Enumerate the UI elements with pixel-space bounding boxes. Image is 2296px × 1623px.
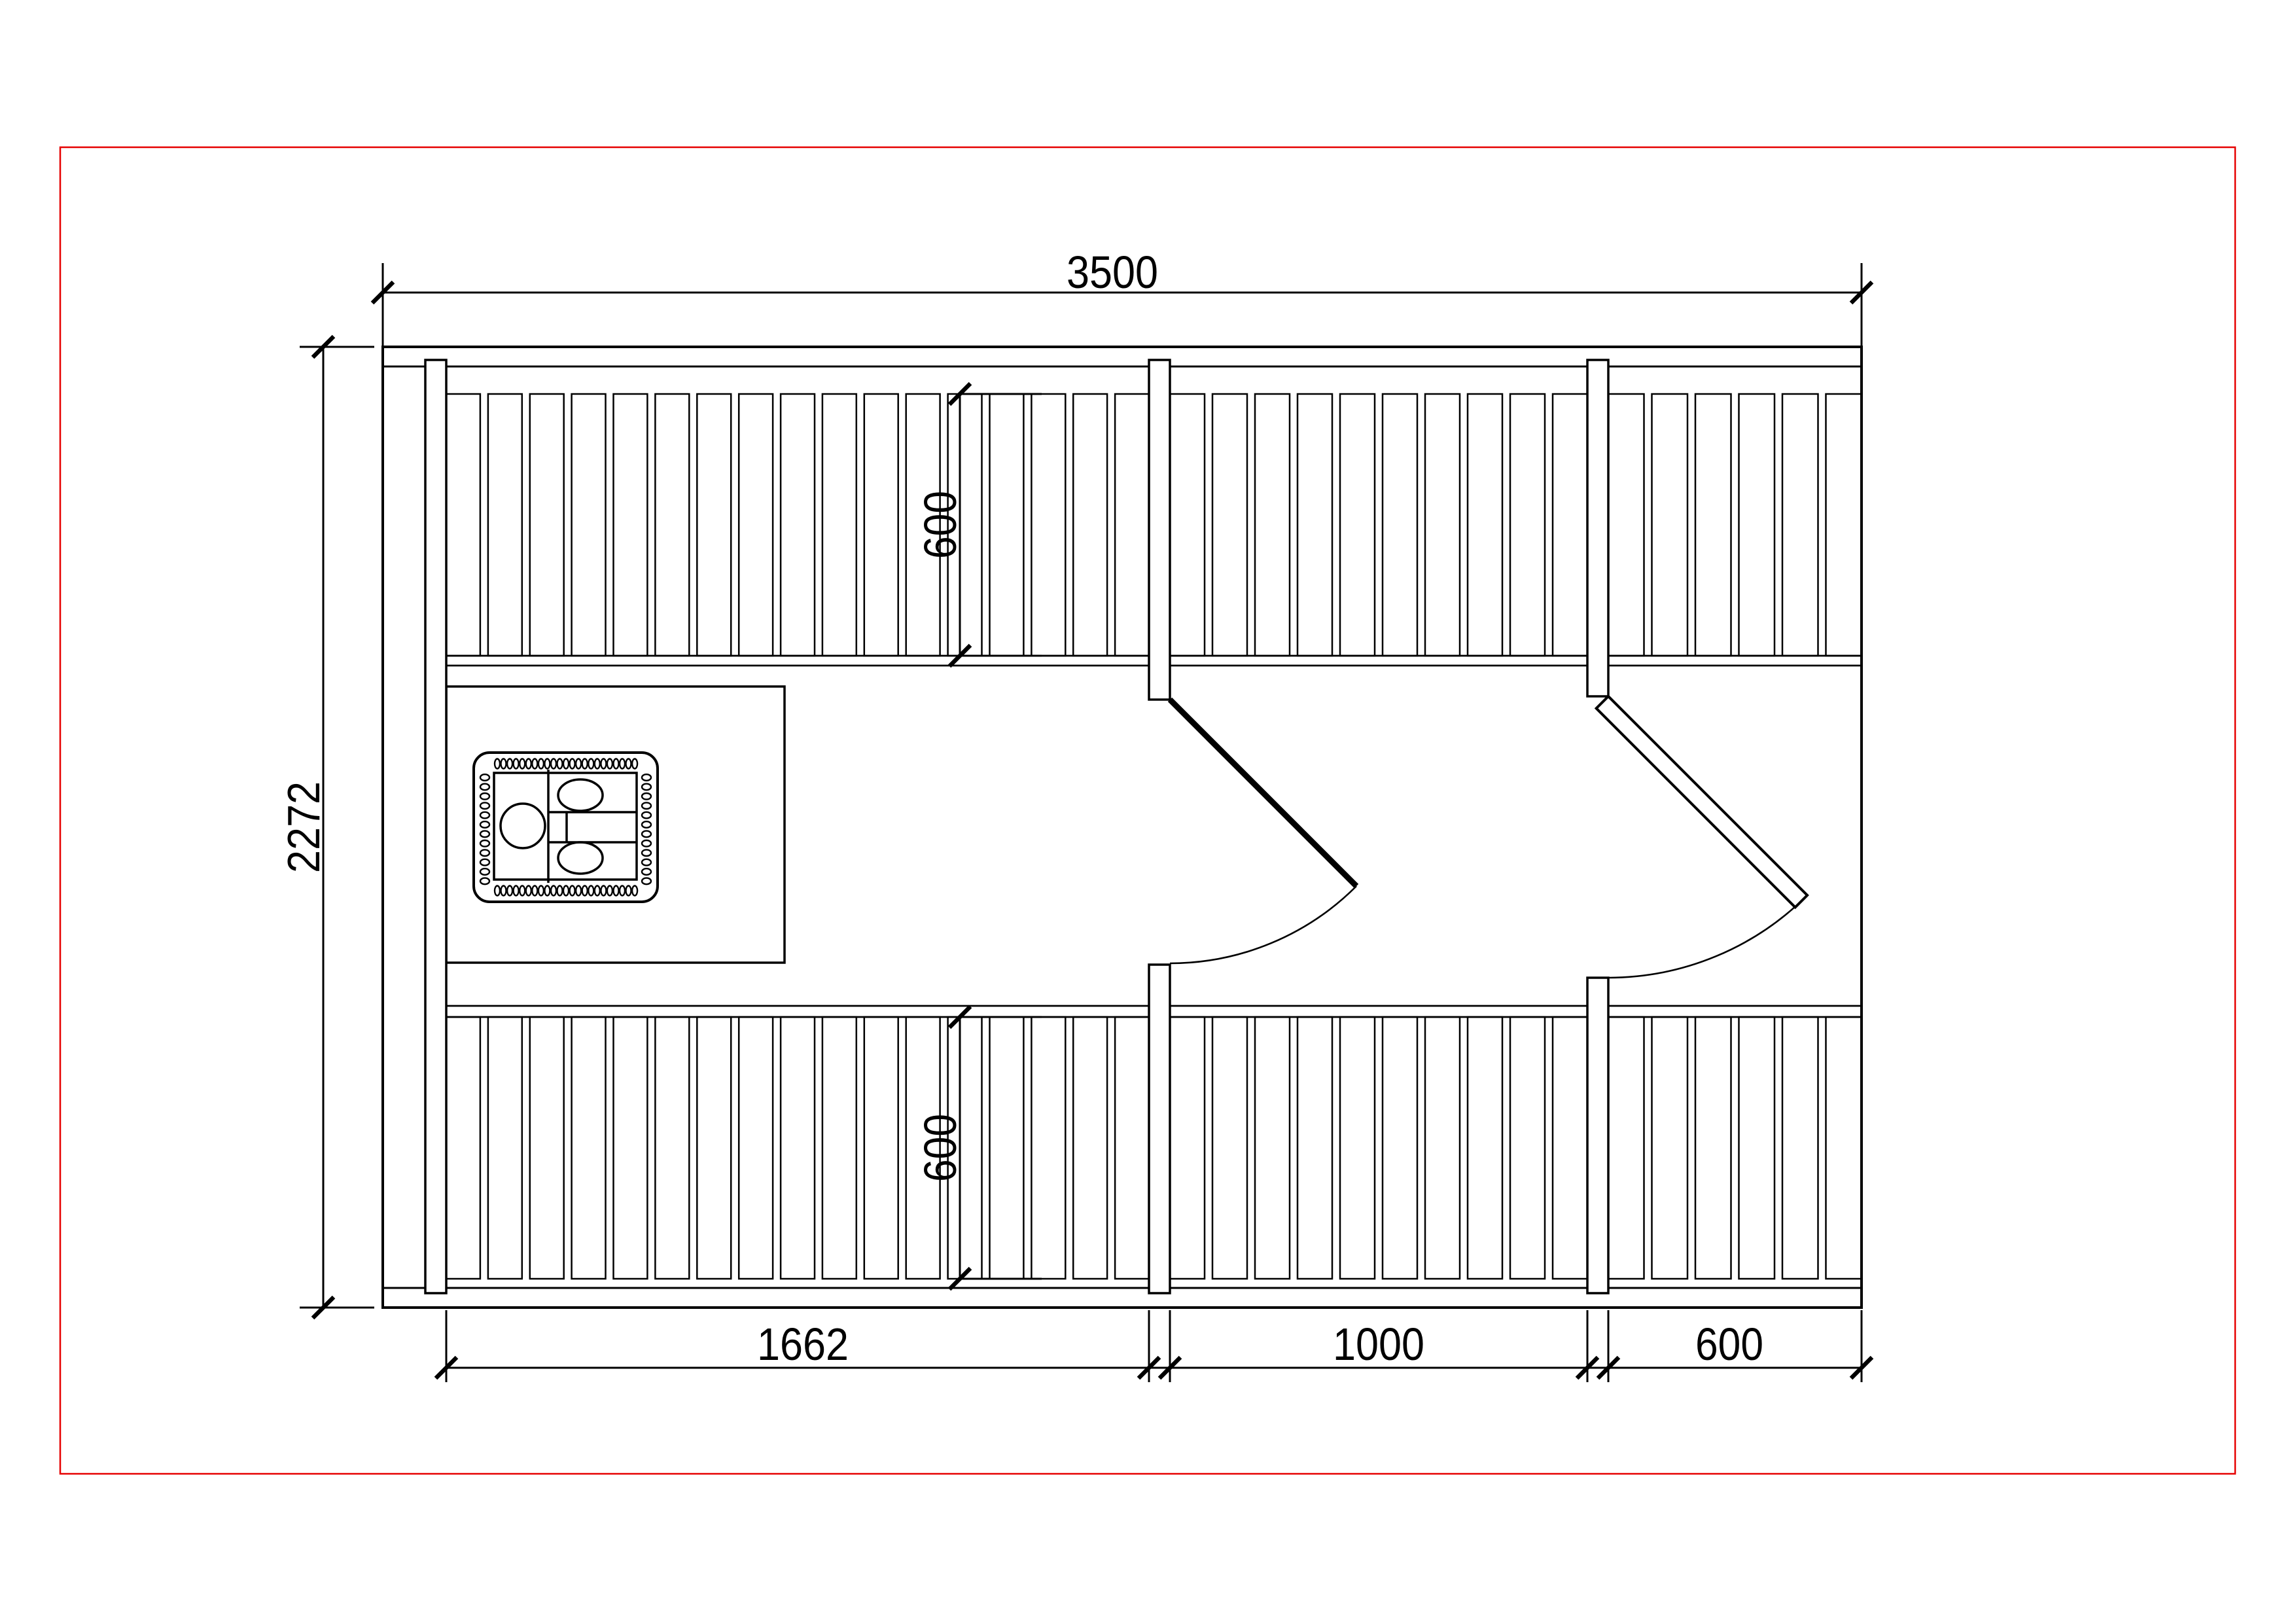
bench-slat	[1383, 394, 1417, 656]
bench-slat	[781, 394, 815, 656]
bench-slat	[1170, 394, 1205, 656]
bench-slat	[1782, 1017, 1818, 1279]
bench-slat	[1652, 394, 1688, 656]
partition2-post-lower	[1587, 978, 1608, 1293]
bench-slat	[1298, 1017, 1332, 1279]
bench-slat	[488, 1017, 522, 1279]
bench-slat	[1073, 394, 1107, 656]
bench-slat	[614, 394, 648, 656]
bench-slat	[1298, 394, 1332, 656]
bench-slat	[1255, 1017, 1290, 1279]
bench-slat	[488, 394, 522, 656]
bench-slat	[1031, 394, 1065, 656]
bench-slat	[822, 394, 857, 656]
bench-slat	[1608, 394, 1644, 656]
bench-slat	[530, 1017, 564, 1279]
bench-slat	[864, 1017, 898, 1279]
bench-slat	[990, 1017, 1024, 1279]
bench-slat	[1510, 394, 1545, 656]
door-1-swing-arc	[1170, 886, 1356, 963]
bench-slat	[1468, 1017, 1502, 1279]
bench-slat	[1255, 394, 1290, 656]
bench-slat	[1073, 1017, 1107, 1279]
bench-slat	[739, 394, 773, 656]
drawing-sheet: 3500 2272 600 600 1662 1000 600	[0, 0, 2296, 1623]
floor-plan-svg: 3500 2272 600 600 1662 1000 600	[0, 0, 2296, 1623]
dim-top-bench-label: 600	[915, 491, 966, 559]
bench-slat	[990, 394, 1024, 656]
bench-slat	[1652, 1017, 1688, 1279]
bench-slat	[1115, 394, 1149, 656]
bench-slat	[781, 1017, 815, 1279]
bench-slat	[1510, 1017, 1545, 1279]
door-2-swing-arc	[1608, 895, 1807, 978]
bench-slat	[1212, 1017, 1247, 1279]
bench-slat	[739, 1017, 773, 1279]
bench-slat	[1340, 1017, 1375, 1279]
bench-slat	[1695, 394, 1731, 656]
bench-slat	[1115, 1017, 1149, 1279]
bench-slat	[572, 1017, 606, 1279]
dim-segment-1-label: 1662	[757, 1319, 849, 1370]
bench-slat	[572, 394, 606, 656]
dim-overall-width-label: 3500	[1067, 247, 1158, 298]
bench-slat	[1031, 1017, 1065, 1279]
bench-slat	[1468, 394, 1502, 656]
left-post	[425, 360, 446, 1293]
dim-segment-2-label: 1000	[1333, 1319, 1424, 1370]
door-1	[1170, 700, 1356, 963]
bench-slat	[655, 394, 689, 656]
door-1-leaf	[1170, 700, 1356, 886]
dim-bottom-bench-label: 600	[915, 1114, 966, 1182]
bench-slat	[1826, 1017, 1862, 1279]
bench-slat	[1695, 1017, 1731, 1279]
dim-overall-width: 3500	[383, 247, 1862, 346]
dim-segment-3-label: 600	[1695, 1319, 1763, 1370]
bench-slat	[446, 394, 480, 656]
bench-slat	[1340, 394, 1375, 656]
dim-bottom-chain: 1662 1000 600	[446, 1310, 1862, 1382]
bench-slat	[1739, 394, 1775, 656]
bench-slat	[1170, 1017, 1205, 1279]
dim-overall-depth: 2272	[278, 347, 374, 1308]
partition2-post-upper	[1587, 360, 1608, 696]
bench-slat	[1425, 394, 1460, 656]
bench-slat	[1608, 1017, 1644, 1279]
partition1-post-lower	[1149, 965, 1170, 1293]
bench-slat	[1739, 1017, 1775, 1279]
bench-slat	[822, 1017, 857, 1279]
door-2-leaf	[1597, 696, 1807, 907]
bench-slat	[864, 394, 898, 656]
bench-slat	[446, 1017, 480, 1279]
door-2	[1597, 696, 1807, 978]
dim-overall-depth-label: 2272	[278, 781, 329, 873]
bench-slat	[1826, 394, 1862, 656]
bench-slat	[697, 1017, 731, 1279]
partition1-post-upper	[1149, 360, 1170, 700]
bench-slat	[1425, 1017, 1460, 1279]
bench-slat	[614, 1017, 648, 1279]
bench-slat	[1553, 394, 1587, 656]
bench-slat	[1782, 394, 1818, 656]
sauna-heater	[474, 753, 658, 902]
bench-slat	[1212, 394, 1247, 656]
bench-slat	[697, 394, 731, 656]
bench-slat	[530, 394, 564, 656]
bench-slat	[1553, 1017, 1587, 1279]
bench-slat	[1383, 1017, 1417, 1279]
bench-slat	[655, 1017, 689, 1279]
